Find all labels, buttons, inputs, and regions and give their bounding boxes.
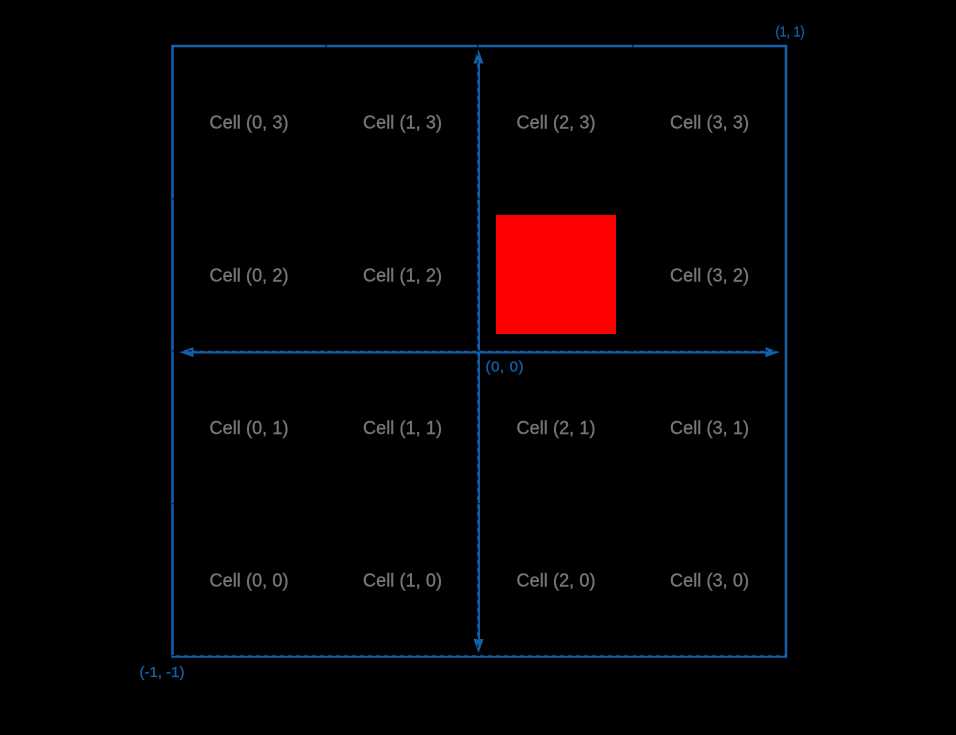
svg-text:Cell (1, 2): Cell (1, 2) [363, 266, 442, 286]
svg-text:Cell (3, 2): Cell (3, 2) [670, 266, 749, 286]
svg-text:Cell (3, 1): Cell (3, 1) [670, 418, 749, 438]
svg-text:Cell (1, 0): Cell (1, 0) [363, 571, 442, 591]
svg-text:Cell (0, 1): Cell (0, 1) [210, 418, 289, 438]
svg-text:Cell (0, 2): Cell (0, 2) [210, 266, 289, 286]
svg-text:Cell (0, 3): Cell (0, 3) [210, 113, 289, 133]
svg-text:Cell (2, 1): Cell (2, 1) [517, 418, 596, 438]
svg-text:(1, 1): (1, 1) [776, 24, 805, 41]
svg-text:(-1, -1): (-1, -1) [140, 664, 185, 681]
svg-text:Cell (2, 0): Cell (2, 0) [517, 571, 596, 591]
svg-text:(0, 0): (0, 0) [486, 359, 524, 376]
svg-text:Cell (3, 3): Cell (3, 3) [670, 113, 749, 133]
svg-text:Cell (3, 0): Cell (3, 0) [670, 571, 749, 591]
svg-text:Cell (0, 0): Cell (0, 0) [210, 571, 289, 591]
svg-text:Cell (1, 3): Cell (1, 3) [363, 113, 442, 133]
svg-text:Cell (1, 1): Cell (1, 1) [363, 418, 442, 438]
svg-text:Cell (2, 3): Cell (2, 3) [517, 113, 596, 133]
